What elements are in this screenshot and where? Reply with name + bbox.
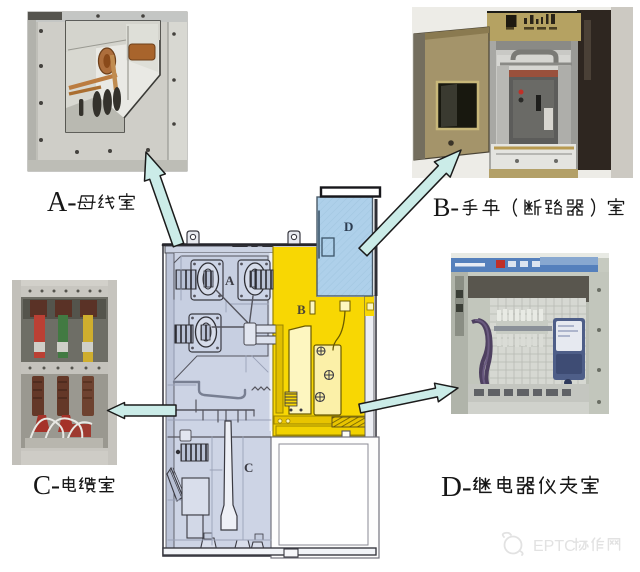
svg-text:B-: B-: [433, 193, 459, 222]
svg-text:C: C: [244, 460, 253, 475]
svg-text:B: B: [297, 302, 306, 317]
svg-text:C-: C-: [33, 470, 60, 500]
svg-text:A-: A-: [47, 187, 77, 218]
svg-text:A: A: [225, 273, 235, 288]
svg-text:EPTC: EPTC: [533, 538, 576, 555]
svg-text:D-: D-: [441, 471, 472, 503]
svg-text:D: D: [344, 219, 353, 234]
